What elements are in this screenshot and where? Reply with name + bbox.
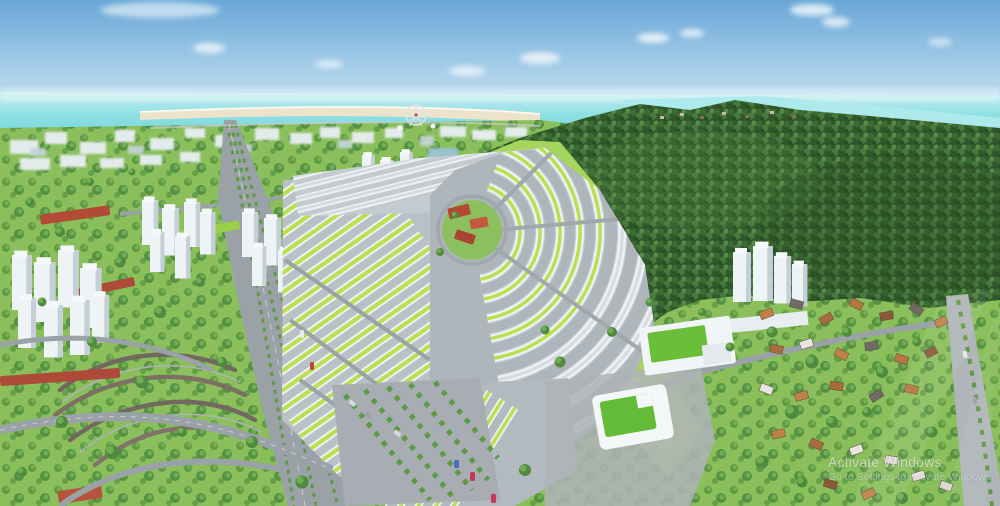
horizon-haze	[0, 88, 1000, 102]
parking-lot	[332, 378, 500, 506]
aerial-render: Activate Windows Go to Settings to activ…	[0, 0, 1000, 506]
scene-canvas	[0, 0, 1000, 506]
